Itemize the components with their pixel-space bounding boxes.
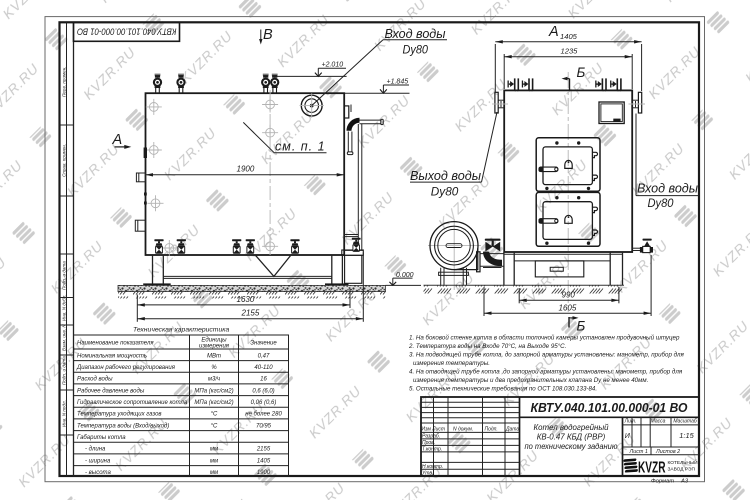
svg-text:МПа (кгс/см2): МПа (кгс/см2) (194, 388, 233, 394)
svg-text:1:15: 1:15 (679, 431, 694, 440)
svg-text:40-110: 40-110 (254, 365, 273, 371)
svg-text:Dy80: Dy80 (648, 196, 674, 210)
svg-text:5. Остальные технические треб: 5. Остальные технические требования по О… (409, 386, 597, 393)
svg-text:А: А (548, 24, 559, 40)
svg-text:KVZR: KVZR (638, 459, 666, 476)
svg-text:Справ. примен.: Справ. примен. (62, 144, 67, 177)
svg-text:0,6 (6,0): 0,6 (6,0) (252, 388, 274, 394)
svg-text:16: 16 (260, 377, 267, 383)
svg-text:- ширина: - ширина (85, 458, 111, 464)
svg-text:Dy80: Dy80 (403, 43, 429, 57)
svg-text:мм: мм (210, 458, 218, 464)
svg-text:Подп. и дата: Подп. и дата (62, 261, 67, 290)
svg-text:4. На отводящей трубе котла ,: 4. На отводящей трубе котла ,до запорной… (409, 369, 683, 376)
svg-text:Вход воды: Вход воды (385, 26, 446, 41)
svg-text:Подп.: Подп. (485, 427, 498, 433)
svg-text:Формат: Формат (651, 478, 674, 484)
svg-text:не более 280: не более 280 (245, 412, 282, 418)
svg-text:Н.контр.: Н.контр. (422, 464, 443, 470)
svg-text:Лит.: Лит. (624, 419, 637, 425)
svg-text:0.000: 0.000 (396, 272, 414, 279)
svg-text:см. п. 1: см. п. 1 (275, 140, 326, 154)
svg-text:1405: 1405 (257, 458, 271, 464)
svg-text:измерения температуры и два пр: измерения температуры и два предохраните… (413, 377, 648, 384)
svg-text:Масштаб: Масштаб (673, 419, 697, 425)
svg-text:Б: Б (577, 319, 586, 334)
svg-text:1630: 1630 (237, 295, 255, 304)
svg-text:Инв. N подл.: Инв. N подл. (62, 400, 67, 427)
svg-text:Значение: Значение (250, 341, 277, 347)
svg-text:мм: мм (210, 470, 218, 476)
svg-text:N докум.: N докум. (453, 427, 473, 433)
svg-text:Рабочее давление воды: Рабочее давление воды (77, 388, 145, 394)
svg-text:- длина: - длина (85, 447, 106, 453)
svg-text:+1.845: +1.845 (387, 78, 409, 85)
svg-text:МПа (кгс/см2): МПа (кгс/см2) (194, 400, 233, 406)
svg-text:°С: °С (211, 412, 218, 418)
svg-text:Диапазон рабочего регулировани: Диапазон рабочего регулирования (76, 365, 176, 371)
svg-text:Расход воды: Расход воды (77, 377, 113, 383)
svg-text:В: В (263, 27, 273, 43)
svg-text:Б: Б (577, 65, 586, 80)
svg-text:КВТУ.040.101.00.000-01 ВО: КВТУ.040.101.00.000-01 ВО (531, 400, 689, 415)
svg-text:Разраб.: Разраб. (422, 434, 440, 440)
svg-text:ЗАВОД РЭП: ЗАВОД РЭП (668, 467, 696, 473)
svg-text:Масса: Масса (651, 419, 666, 425)
svg-text:Температура уходящих газов: Температура уходящих газов (77, 412, 162, 418)
svg-text:1. На боковой стенке котла в: 1. На боковой стенке котла в области топ… (409, 335, 680, 342)
svg-text:Т.контр.: Т.контр. (422, 447, 442, 453)
svg-text:0,47: 0,47 (258, 353, 270, 359)
svg-text:Температура воды (Вход/выход): Температура воды (Вход/выход) (77, 423, 169, 429)
svg-text:Взам. инв. N: Взам. инв. N (62, 324, 67, 351)
svg-text:1605: 1605 (559, 303, 577, 312)
svg-text:Перв. примен.: Перв. примен. (62, 66, 67, 97)
svg-text:1405: 1405 (560, 32, 578, 41)
svg-text:2. Температура воды на Входе: 2. Температура воды на Входе 70°С, на Вы… (408, 343, 566, 350)
svg-text:1235: 1235 (561, 47, 579, 56)
svg-text:0,06 (0,6): 0,06 (0,6) (251, 400, 277, 406)
svg-text:Инв. N дубл.: Инв. N дубл. (62, 294, 67, 321)
svg-text:Выход воды: Выход воды (410, 168, 481, 183)
svg-text:+2.010: +2.010 (322, 62, 344, 69)
svg-text:Изм Лист: Изм Лист (422, 427, 446, 433)
svg-text:- высота: - высота (85, 470, 111, 476)
svg-text:м3/ч: м3/ч (208, 377, 220, 383)
svg-text:Наименование показателя: Наименование показателя (77, 341, 154, 347)
svg-text:3. На подводящей трубе котла,: 3. На подводящей трубе котла, до запорно… (409, 352, 685, 359)
svg-text:КВТУ.040.101.00.000-01 ВО: КВТУ.040.101.00.000-01 ВО (77, 27, 177, 37)
svg-text:1900: 1900 (237, 165, 255, 174)
svg-text:Дата: Дата (505, 427, 519, 433)
svg-text:2155: 2155 (241, 308, 260, 317)
svg-text:А: А (112, 132, 123, 148)
svg-text:Габариты котла: Габариты котла (77, 435, 126, 441)
svg-text:Подп. и дата: Подп. и дата (62, 356, 67, 385)
svg-text:Dy80: Dy80 (431, 185, 459, 199)
svg-text:Техническая характеристика: Техническая характеристика (133, 327, 229, 334)
svg-text:°С: °С (211, 423, 218, 429)
svg-text:Номинальная мощность: Номинальная мощность (77, 353, 147, 359)
svg-text:Утв.: Утв. (422, 471, 433, 477)
svg-text:990: 990 (562, 291, 576, 300)
svg-text:Пров.: Пров. (422, 440, 435, 446)
svg-text:Лист 1: Лист 1 (629, 449, 648, 455)
svg-text:измерения: измерения (199, 344, 230, 350)
svg-text:Вход воды: Вход воды (637, 181, 698, 196)
svg-text:А3: А3 (680, 478, 689, 484)
svg-text:мм: мм (210, 447, 218, 453)
svg-text:2155: 2155 (256, 447, 271, 453)
svg-text:%: % (211, 365, 217, 371)
svg-text:70/95: 70/95 (256, 423, 272, 429)
svg-text:МВт: МВт (207, 353, 221, 359)
svg-text:КВ-0.47 КБД (РВР): КВ-0.47 КБД (РВР) (537, 433, 606, 442)
svg-text:Котел водогрейный: Котел водогрейный (533, 423, 609, 432)
svg-text:Листов 2: Листов 2 (655, 449, 680, 455)
svg-text:1900: 1900 (257, 470, 271, 476)
svg-text:Гидравлическое сопротивление к: Гидравлическое сопротивление котла (77, 400, 188, 406)
svg-text:по техническому заданию: по техническому заданию (525, 442, 618, 451)
svg-text:измерения температуры.: измерения температуры. (413, 360, 490, 367)
